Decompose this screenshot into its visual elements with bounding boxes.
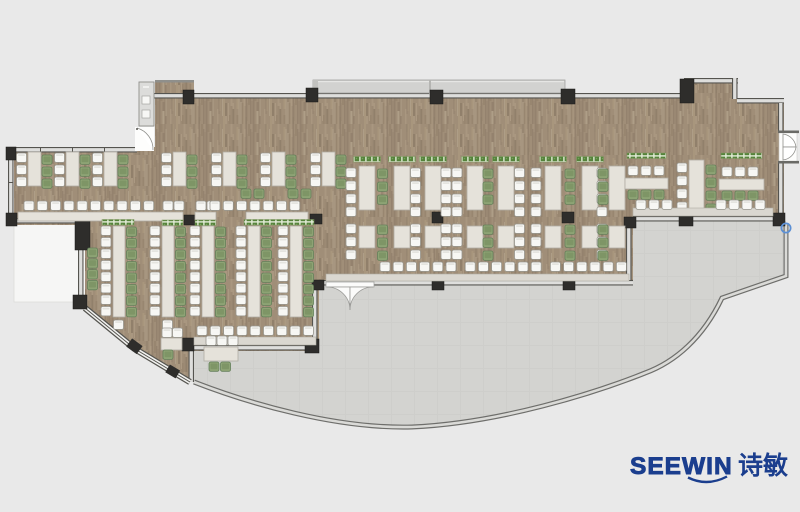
svg-text:SEEWIN: SEEWIN (630, 453, 733, 480)
svg-text:诗敏: 诗敏 (738, 451, 788, 480)
